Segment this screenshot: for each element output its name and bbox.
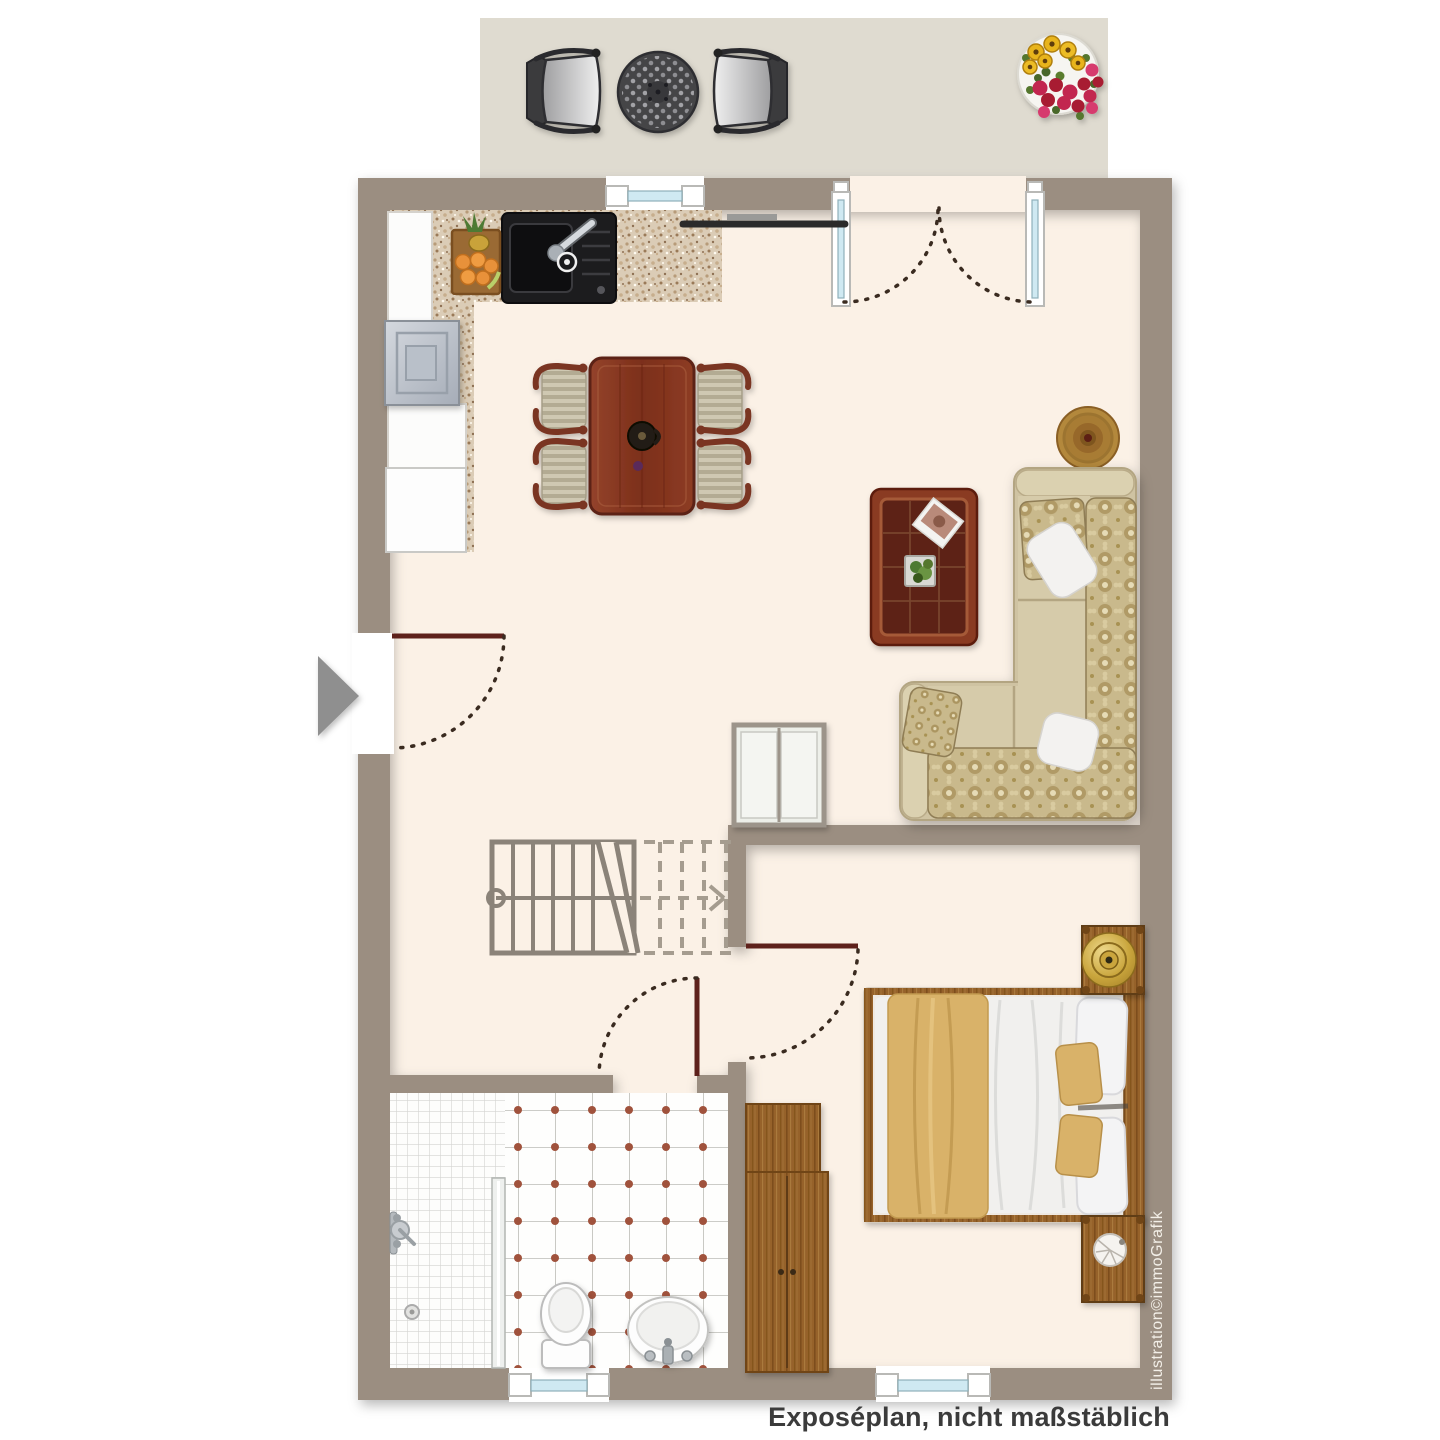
accent-pillow [1055, 1042, 1103, 1106]
bistro-table-icon [618, 52, 698, 132]
wall-top [358, 178, 1172, 210]
bathroom [390, 1093, 728, 1368]
nightstand-icon [1082, 1216, 1144, 1302]
toilet-icon [541, 1283, 591, 1368]
wall-hall-bedroom-upper [728, 845, 746, 947]
round-rug-icon [1057, 407, 1119, 469]
coffee-table-icon [871, 489, 977, 645]
floorplan-page: Exposéplan, nicht maßstäblich illustrati… [0, 0, 1440, 1440]
nightstand-icon [1082, 926, 1144, 994]
wardrobe-icon [746, 1104, 828, 1372]
dining-chair-icon [536, 364, 588, 435]
kitchen-cabinet [388, 404, 466, 468]
wash-basin-icon [628, 1297, 708, 1364]
entry-opening [352, 633, 394, 754]
bistro-chair-right-icon [714, 49, 788, 134]
floor-plan: Exposéplan, nicht maßstäblich illustrati… [0, 0, 1440, 1440]
bathroom-window [509, 1366, 609, 1402]
wall-bath-top-right [697, 1075, 746, 1093]
dining-chair-icon [697, 439, 749, 510]
double-bed-icon [864, 988, 1144, 1222]
table-lamp-icon [1094, 1234, 1126, 1266]
sofa-cushion [901, 686, 963, 758]
watermark-text: illustration©immoGrafik [1149, 1210, 1166, 1390]
kitchen-window [606, 176, 704, 212]
kitchen-sink-icon [502, 213, 616, 303]
accent-pillow [1055, 1114, 1103, 1178]
wall-bath-top [390, 1075, 613, 1093]
refrigerator-icon [386, 468, 466, 552]
dining-chair-icon [697, 364, 749, 435]
wall-hall-bedroom-lower [728, 1062, 746, 1368]
dining-table-icon [590, 358, 694, 514]
bedroom-window [876, 1366, 990, 1402]
blanket [888, 994, 988, 1218]
glass-partition [492, 1178, 505, 1368]
plan-caption: Exposéplan, nicht maßstäblich [768, 1402, 1170, 1432]
stove-icon [385, 321, 459, 405]
dining-chair-icon [536, 439, 588, 510]
wall-living-bedroom [728, 825, 1140, 845]
gold-lamp-icon [1082, 933, 1136, 987]
bistro-chair-left-icon [527, 49, 601, 134]
kitchen-cabinet [388, 212, 432, 322]
hall-closet-icon [734, 725, 824, 825]
